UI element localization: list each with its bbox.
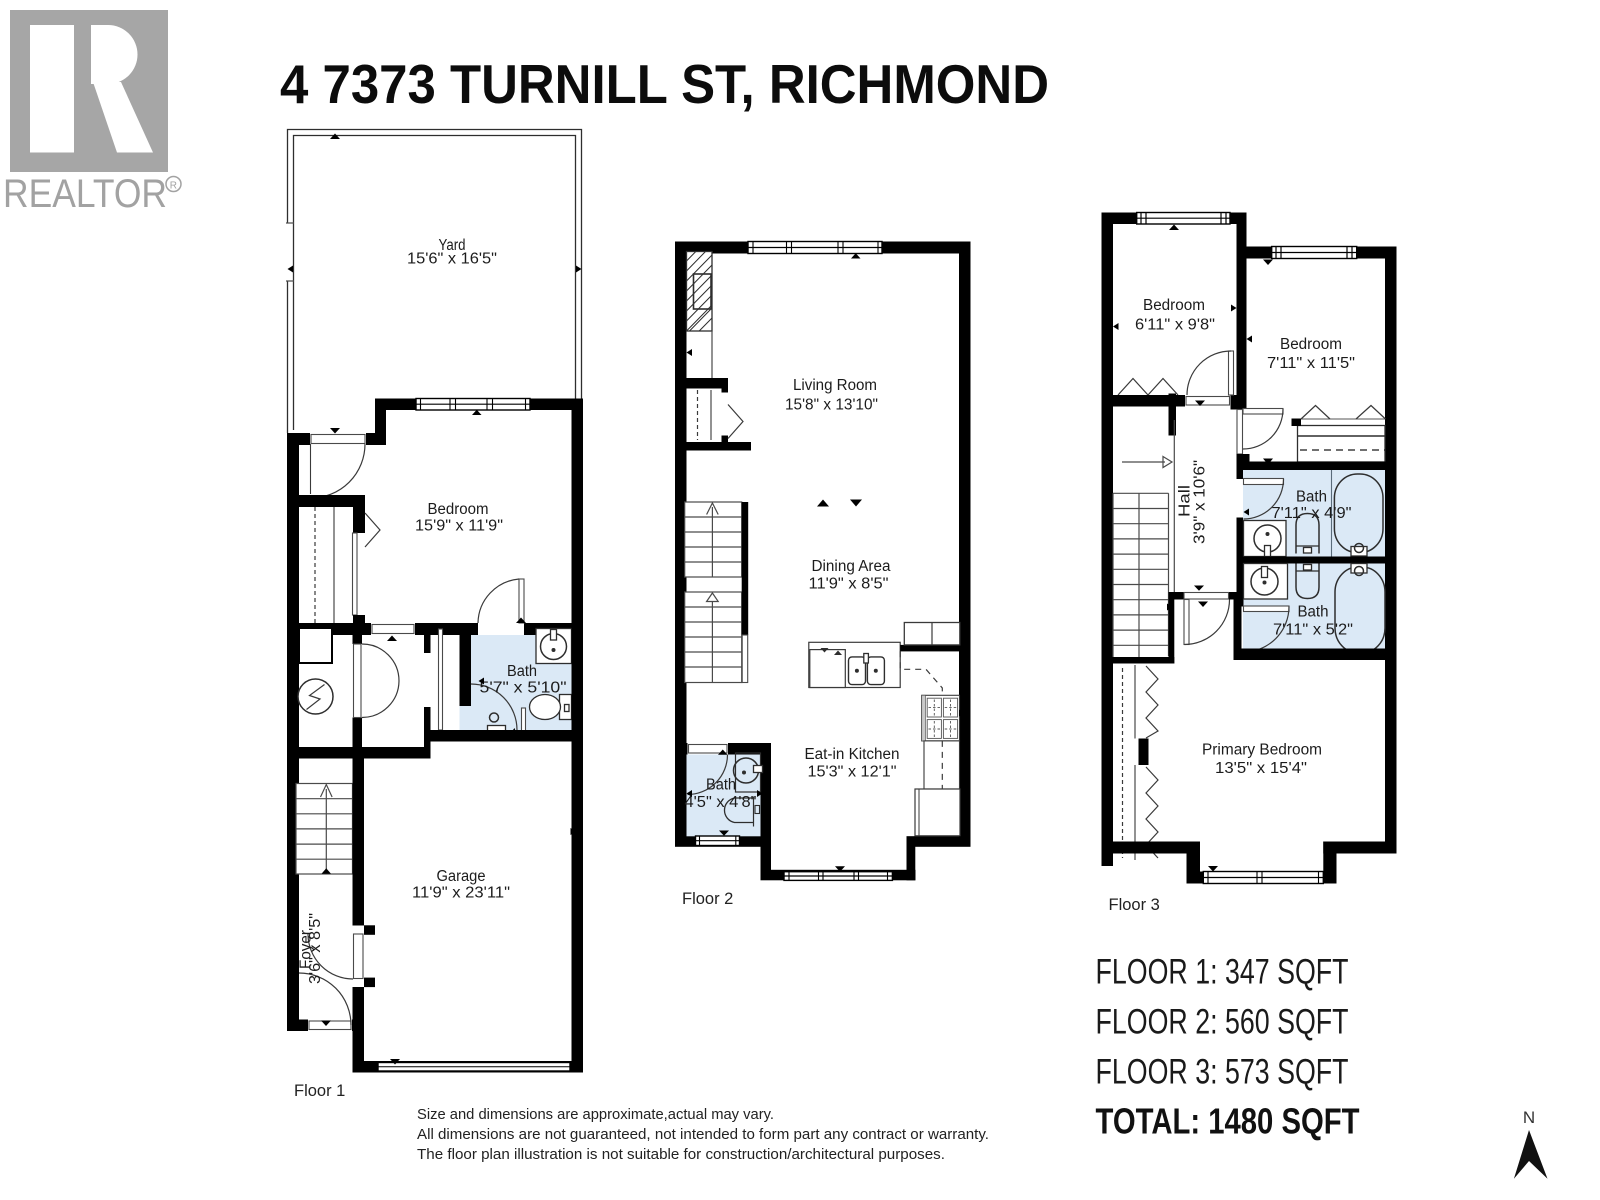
svg-text:Floor 2: Floor 2	[682, 890, 733, 908]
svg-text:Bath: Bath	[507, 663, 537, 680]
svg-text:15'6" x 16'5": 15'6" x 16'5"	[407, 251, 497, 268]
svg-text:11'9" x 8'5": 11'9" x 8'5"	[809, 576, 889, 593]
svg-text:N: N	[1523, 1108, 1535, 1127]
svg-text:7'11" x 11'5": 7'11" x 11'5"	[1267, 355, 1355, 372]
svg-text:Garage: Garage	[437, 868, 486, 885]
svg-text:REALTOR: REALTOR	[3, 172, 167, 216]
svg-text:7'11" x 5'2": 7'11" x 5'2"	[1273, 622, 1353, 639]
svg-text:Dining Area: Dining Area	[812, 558, 891, 575]
svg-text:Bath: Bath	[1298, 604, 1329, 621]
svg-text:7'11" x 4'9": 7'11" x 4'9"	[1272, 505, 1352, 522]
svg-text:3'6" x 8'5": 3'6" x 8'5"	[307, 913, 324, 984]
svg-text:4 7373 TURNILL ST, RICHMOND: 4 7373 TURNILL ST, RICHMOND	[280, 53, 1049, 115]
svg-text:15'9" x 11'9": 15'9" x 11'9"	[415, 518, 503, 535]
svg-text:3'9" x 10'6": 3'9" x 10'6"	[1192, 460, 1209, 544]
svg-text:15'3" x 12'1": 15'3" x 12'1"	[808, 764, 897, 781]
svg-text:Bedroom: Bedroom	[1143, 297, 1205, 314]
svg-text:All dimensions are not guarant: All dimensions are not guaranteed, not i…	[417, 1127, 989, 1143]
svg-text:FLOOR 2: 560 SQFT: FLOOR 2: 560 SQFT	[1096, 1003, 1349, 1042]
svg-text:Primary Bedroom: Primary Bedroom	[1202, 742, 1322, 759]
svg-text:Bath: Bath	[1296, 489, 1327, 506]
svg-text:TOTAL: 1480 SQFT: TOTAL: 1480 SQFT	[1096, 1101, 1360, 1142]
svg-text:4'5" x 4'8": 4'5" x 4'8"	[685, 794, 757, 811]
svg-text:FLOOR 3: 573 SQFT: FLOOR 3: 573 SQFT	[1096, 1053, 1349, 1092]
svg-text:The floor plan illustration is: The floor plan illustration is not suita…	[417, 1147, 945, 1163]
svg-text:5'7" x 5'10": 5'7" x 5'10"	[480, 680, 567, 697]
svg-text:11'9" x 23'11": 11'9" x 23'11"	[412, 885, 510, 902]
svg-text:Floor 3: Floor 3	[1109, 896, 1160, 914]
svg-text:Bath: Bath	[706, 777, 736, 794]
svg-text:6'11" x 9'8": 6'11" x 9'8"	[1135, 317, 1215, 334]
svg-text:Bedroom: Bedroom	[1280, 336, 1342, 353]
svg-text:13'5" x 15'4": 13'5" x 15'4"	[1215, 760, 1307, 777]
svg-text:15'8" x 13'10": 15'8" x 13'10"	[785, 397, 878, 414]
svg-text:Bedroom: Bedroom	[428, 501, 489, 518]
svg-text:R: R	[170, 181, 177, 192]
svg-text:Eat-in Kitchen: Eat-in Kitchen	[805, 746, 900, 763]
svg-text:Size and dimensions are approx: Size and dimensions are approximate,actu…	[417, 1107, 774, 1123]
svg-text:Living Room: Living Room	[793, 377, 877, 394]
svg-text:Floor 1: Floor 1	[294, 1082, 345, 1100]
svg-text:FLOOR 1: 347 SQFT: FLOOR 1: 347 SQFT	[1096, 953, 1349, 992]
